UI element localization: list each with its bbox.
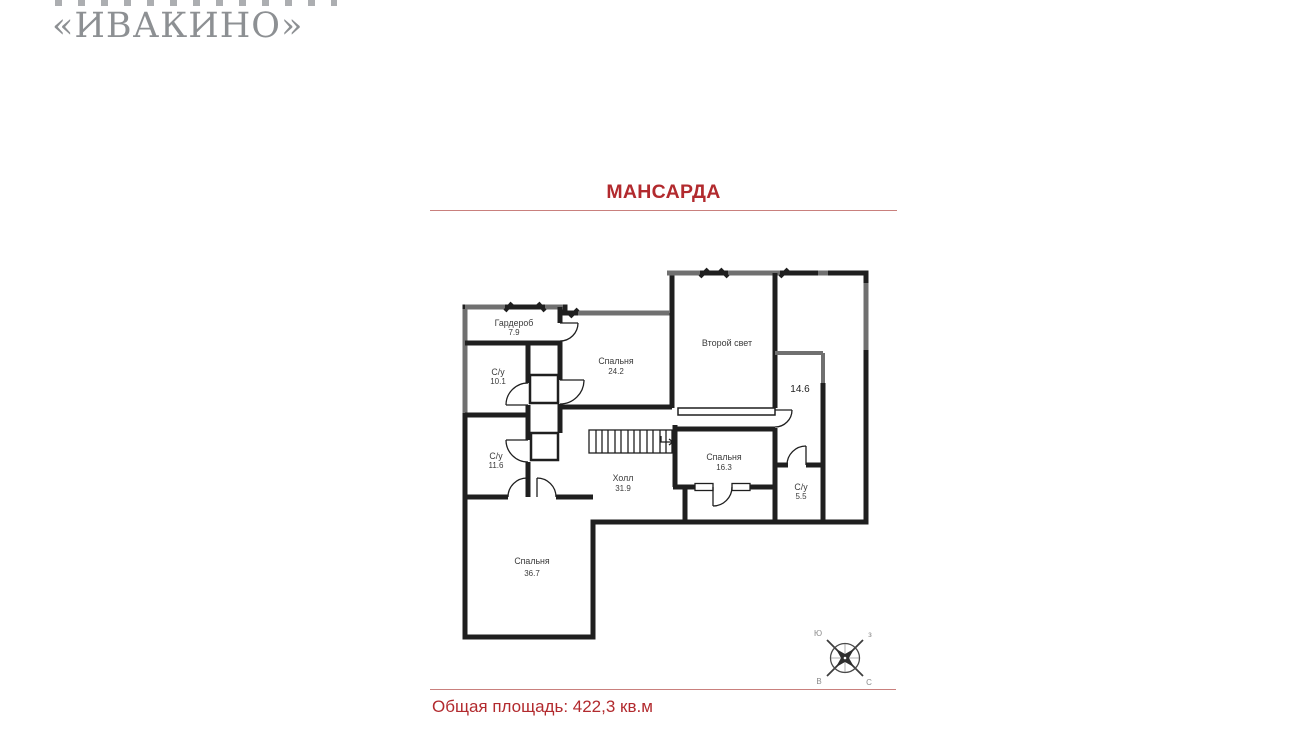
room-label-bedroom-24: Спальня [598, 356, 634, 366]
footer-divider [430, 689, 896, 690]
room-label-bedroom-16: Спальня [706, 452, 742, 462]
room-area-14: 14.6 [790, 384, 810, 395]
compass-lines [827, 640, 863, 676]
compass-label-north: С [866, 678, 872, 687]
room-label-second-light: Второй свет [702, 338, 752, 348]
room-label-wardrobe: Гардероб [495, 318, 534, 328]
compass-label-east: В [816, 677, 821, 686]
compass-label-west: з [868, 630, 872, 639]
room-area-bath1: 10.1 [490, 377, 506, 386]
room-area-bedroom-24: 24.2 [608, 367, 624, 376]
room-label-bedroom-36: Спальня [514, 556, 550, 566]
room-area-wardrobe: 7.9 [508, 328, 520, 337]
room-area-bedroom-36: 36.7 [524, 569, 540, 578]
compass-rose: Ю з В С [806, 618, 890, 694]
room-area-bath2: 11.6 [489, 461, 505, 470]
page-title: МАНСАРДА [430, 181, 897, 204]
page: { "logo": { "name": "«ИВАКИНО»" }, "titl… [0, 0, 1300, 731]
logo-text: «ИВАКИНО» [52, 6, 303, 46]
total-area-text: Общая площадь: 422,3 кв.м [432, 697, 653, 717]
room-label-bath2: С/у [489, 451, 503, 461]
room-area-bath3: 5.5 [795, 492, 807, 501]
room-area-bedroom-16: 16.3 [716, 463, 732, 472]
room-label-bath1: С/у [491, 367, 505, 377]
title-divider [430, 210, 897, 211]
room-area-hall: 31.9 [615, 484, 631, 493]
stairs [589, 430, 673, 453]
floor-plan: Гардероб 7.9 С/у 10.1 Спальня 24.2 Второ… [455, 258, 875, 650]
compass-label-south: Ю [814, 629, 822, 638]
room-label-bath3: С/у [794, 482, 808, 492]
room-label-hall: Холл [613, 473, 634, 483]
railing [678, 408, 775, 415]
